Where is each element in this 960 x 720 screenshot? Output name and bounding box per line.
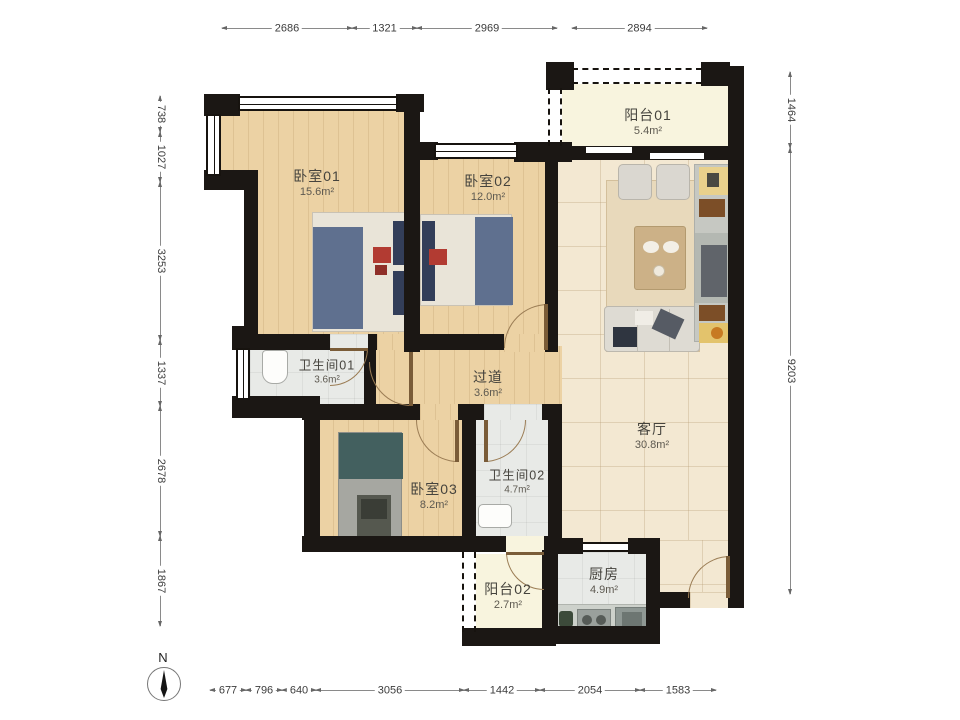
room-label-living-room: 客厅 30.8m² [635, 420, 669, 452]
toilet [262, 350, 288, 384]
north-label: N [147, 650, 179, 665]
dim-bottom-1: 796 [246, 683, 282, 698]
balcony-dashed-boundary [462, 552, 476, 632]
room-area: 12.0m² [464, 190, 512, 204]
door-leaf [409, 352, 413, 406]
dim-top-1: 1321 [352, 21, 417, 36]
dim-arrow-icon [711, 688, 717, 692]
stool [699, 199, 725, 217]
dim-arrow-icon [788, 71, 792, 77]
window [434, 143, 518, 159]
dim-value: 1442 [487, 685, 517, 696]
dim-arrow-icon [463, 688, 469, 692]
chair [361, 499, 387, 519]
dim-arrow-icon [416, 26, 422, 30]
bed-double-02 [420, 214, 512, 306]
dim-arrow-icon [221, 26, 227, 30]
balcony-dashed-boundary [572, 68, 702, 84]
dim-value: 796 [252, 685, 276, 696]
dim-bottom-6: 1583 [640, 683, 716, 698]
dim-value: 9203 [785, 356, 796, 386]
dim-right-0: 1464 [783, 72, 798, 148]
bed-single-03 [338, 432, 402, 542]
dim-arrow-icon [209, 688, 215, 692]
washbasin [478, 504, 512, 528]
sofa-pillow [652, 309, 685, 340]
dim-value: 1867 [155, 566, 166, 596]
dim-arrow-icon [158, 535, 162, 541]
dim-right-1: 9203 [783, 148, 798, 594]
dim-bottom-5: 2054 [540, 683, 640, 698]
dim-left-1: 1027 [153, 132, 168, 182]
room-area: 3.6m² [299, 374, 355, 387]
burner [582, 615, 592, 625]
sliding-window-slot [586, 147, 632, 153]
lamp-icon [707, 173, 719, 187]
plate [643, 241, 659, 253]
room-area: 5.4m² [624, 124, 672, 138]
bowl-icon [711, 327, 723, 339]
plant [559, 611, 573, 627]
burner [596, 615, 606, 625]
wall [302, 404, 420, 420]
room-name: 过道 [473, 368, 503, 386]
wall [542, 550, 558, 634]
wall [646, 592, 690, 608]
door-leaf [544, 304, 548, 350]
dim-value: 1583 [663, 685, 693, 696]
room-name: 阳台02 [484, 580, 532, 598]
dim-bottom-3: 3056 [316, 683, 464, 698]
room-label-bedroom-01: 卧室01 15.6m² [293, 167, 341, 199]
room-area: 4.7m² [489, 484, 545, 497]
dim-value: 2969 [472, 23, 502, 34]
exterior-mask [198, 190, 244, 340]
dim-value: 2054 [575, 685, 605, 696]
dim-value: 1464 [785, 95, 796, 125]
armchair [656, 164, 690, 200]
room-name: 卧室01 [293, 167, 341, 185]
bed-blanket [475, 217, 513, 305]
dim-left-0: 738 [153, 96, 168, 132]
dim-arrow-icon [639, 688, 645, 692]
dim-top-0: 2686 [222, 21, 352, 36]
wall [302, 536, 506, 552]
room-area: 4.9m² [589, 583, 619, 597]
room-label-bathroom-02: 卫生间02 4.7m² [489, 467, 545, 496]
dim-top-3: 2894 [572, 21, 707, 36]
bed-double-01 [312, 212, 412, 332]
window [206, 114, 221, 176]
cup [653, 265, 665, 277]
room-name: 卫生间02 [489, 467, 545, 483]
bed-decor [373, 247, 391, 263]
sliding-window-slot [650, 153, 704, 159]
dim-left-4: 2678 [153, 406, 168, 536]
room-name: 客厅 [635, 420, 669, 438]
room-area: 8.2m² [410, 498, 458, 512]
dim-value: 738 [155, 102, 166, 126]
wall [556, 538, 583, 554]
kitchen-sliding-door [583, 542, 628, 552]
coffee-table [634, 226, 686, 290]
room-label-balcony-02: 阳台02 2.7m² [484, 580, 532, 612]
dim-arrow-icon [158, 339, 162, 345]
wall [728, 592, 744, 608]
tv [701, 245, 727, 297]
wall [204, 94, 240, 116]
window [238, 96, 398, 111]
room-label-hallway: 过道 3.6m² [473, 368, 503, 400]
sofa [604, 306, 700, 352]
room-area: 30.8m² [635, 438, 669, 452]
room-name: 阳台01 [624, 106, 672, 124]
dim-left-2: 3253 [153, 182, 168, 340]
dim-value: 3253 [155, 246, 166, 276]
dim-arrow-icon [158, 405, 162, 411]
dim-value: 1027 [155, 142, 166, 172]
room-label-balcony-01: 阳台01 5.4m² [624, 106, 672, 138]
wall [548, 404, 562, 542]
window [236, 348, 250, 400]
door-leaf [506, 552, 544, 555]
wall [546, 62, 574, 90]
dim-arrow-icon [788, 147, 792, 153]
dim-arrow-icon [315, 688, 321, 692]
room-name: 厨房 [589, 565, 619, 583]
stool [699, 305, 725, 321]
entry-door-leaf [726, 556, 730, 598]
dim-arrow-icon [158, 181, 162, 187]
bed-decor [375, 265, 387, 275]
wall [548, 626, 660, 644]
wall [462, 418, 476, 540]
dim-value: 677 [216, 685, 240, 696]
doorway-threshold [420, 404, 458, 420]
dim-value: 2678 [155, 456, 166, 486]
wall [244, 334, 330, 350]
dim-arrow-icon [788, 589, 792, 595]
wall [304, 412, 320, 552]
dim-bottom-4: 1442 [464, 683, 540, 698]
north-compass: N [147, 650, 179, 701]
dim-left-3: 1337 [153, 340, 168, 406]
dim-bottom-0: 677 [210, 683, 246, 698]
wall [404, 94, 420, 352]
dim-value: 3056 [375, 685, 405, 696]
balcony-dashed-boundary [548, 88, 562, 146]
dim-left-5: 1867 [153, 536, 168, 626]
tv-cabinet [694, 164, 730, 342]
bed-decor [429, 249, 447, 265]
sofa-pillow [635, 311, 653, 325]
bed-blanket [339, 433, 403, 479]
door-leaf [484, 420, 488, 462]
room-area: 3.6m² [473, 386, 503, 400]
dim-arrow-icon [158, 95, 162, 101]
sofa-pillow [613, 327, 637, 347]
room-name: 卫生间01 [299, 357, 355, 373]
compass-needle-icon [158, 670, 170, 698]
wall [462, 628, 556, 646]
dim-value: 1337 [155, 358, 166, 388]
wall [728, 66, 744, 608]
room-label-bedroom-02: 卧室02 12.0m² [464, 172, 512, 204]
dim-bottom-2: 640 [282, 683, 316, 698]
room-label-bathroom-01: 卫生间01 3.6m² [299, 357, 355, 386]
dim-value: 1321 [369, 23, 399, 34]
room-label-bedroom-03: 卧室03 8.2m² [410, 480, 458, 512]
room-name: 卧室03 [410, 480, 458, 498]
dim-arrow-icon [158, 131, 162, 137]
compass-circle [147, 667, 181, 701]
room-name: 卧室02 [464, 172, 512, 190]
dim-arrow-icon [351, 26, 357, 30]
room-area: 15.6m² [293, 185, 341, 199]
door-leaf [455, 420, 459, 462]
floor-plan: 卧室01 15.6m² 卧室02 12.0m² 阳台01 5.4m² 卫生间01… [0, 0, 960, 720]
dim-arrow-icon [245, 688, 251, 692]
dim-arrow-icon [158, 621, 162, 627]
dim-top-2: 2969 [417, 21, 557, 36]
dim-value: 2686 [272, 23, 302, 34]
room-label-kitchen: 厨房 4.9m² [589, 565, 619, 597]
wall [411, 334, 504, 350]
wall [646, 538, 660, 644]
dim-arrow-icon [571, 26, 577, 30]
wall [514, 142, 572, 162]
dim-arrow-icon [539, 688, 545, 692]
bed-blanket [313, 227, 363, 329]
room-area: 2.7m² [484, 598, 532, 612]
dim-value: 640 [287, 685, 311, 696]
wall [701, 62, 730, 86]
wall [244, 188, 258, 348]
dim-value: 2894 [624, 23, 654, 34]
dim-arrow-icon [702, 26, 708, 30]
armchair [618, 164, 652, 200]
plate [663, 241, 679, 253]
door-leaf [330, 348, 368, 351]
dim-arrow-icon [552, 26, 558, 30]
doorway-threshold [484, 404, 542, 420]
